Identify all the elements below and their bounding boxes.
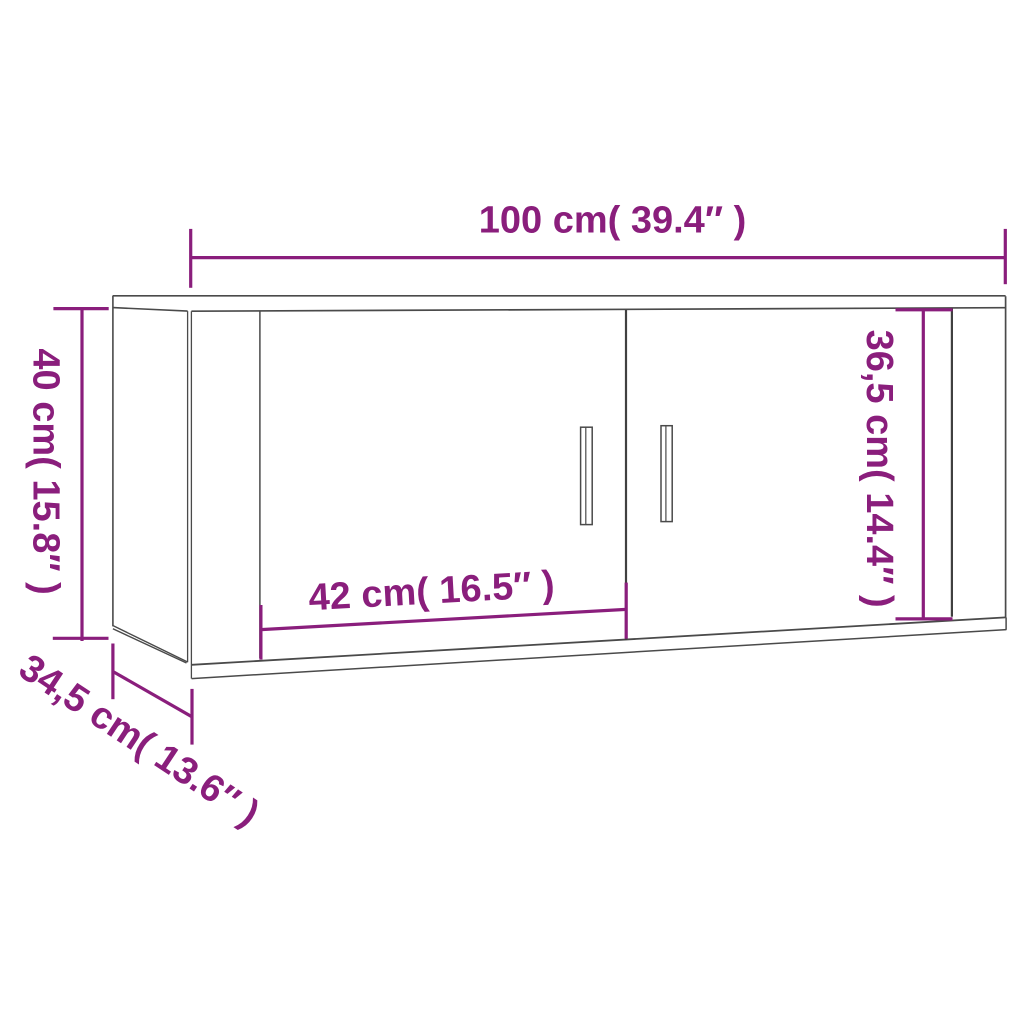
svg-text:36,5 cm( 14.4″ ): 36,5 cm( 14.4″ ) [858,330,900,608]
svg-text:34,5 cm( 13.6″ ): 34,5 cm( 13.6″ ) [12,646,267,834]
svg-text:100 cm( 39.4″ ): 100 cm( 39.4″ ) [479,199,746,241]
svg-text:40 cm( 15.8″ ): 40 cm( 15.8″ ) [25,348,67,594]
svg-text:42 cm( 16.5″ ): 42 cm( 16.5″ ) [307,564,555,620]
